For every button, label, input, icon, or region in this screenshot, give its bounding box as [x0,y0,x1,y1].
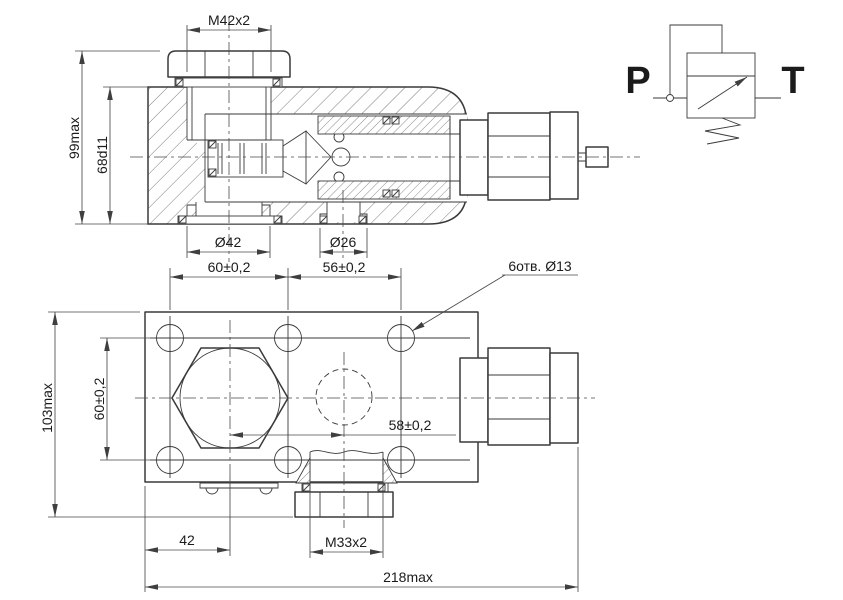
port-t-label: T [781,60,804,102]
dim-port-diameter-label: Ø26 [330,234,357,250]
dim-port-center-spacing-label: 58±0,2 [389,417,432,433]
pilot-node [667,95,674,102]
dim-plate-height-label: 103max [39,383,55,433]
port-p-label: P [625,60,650,102]
adjuster-assembly-plan [460,348,578,445]
mounting-plate [145,312,478,482]
dim-spacing-right-label: 56±0,2 [323,259,366,275]
dim-length-overall-label: 218max [383,569,433,585]
dim-boss-diameter-label: Ø42 [215,234,242,250]
dim-thread-bottom-label: M33x2 [325,534,367,550]
dim-hole-spacing-vertical-label: 60±0,2 [91,377,107,420]
dim-edge-to-plug-label: 42 [179,532,195,548]
dim-spacing-left-label: 60±0,2 [208,259,251,275]
dim-thread-top-label: M42x2 [208,12,250,28]
note-holes-label: 6отв. Ø13 [508,258,572,274]
drawing-sheet: M42x2 99max 68d11 Ø42 Ø26 60±0,2 56±0,2 … [0,0,843,600]
dim-height-overall-label: 99max [66,117,82,159]
dim-bore-height-label: 68d11 [94,136,110,174]
